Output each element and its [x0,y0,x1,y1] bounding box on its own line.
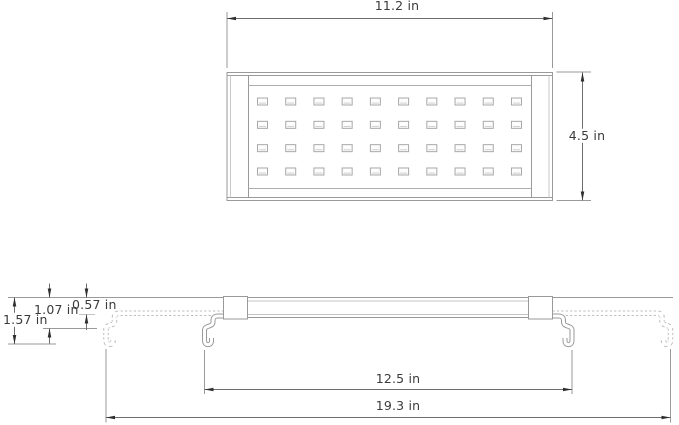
led-chip [455,145,465,152]
led-chip [314,98,324,105]
led-chip [455,121,465,128]
led-chip [511,121,521,128]
led-chip [286,121,296,128]
led-chip [511,168,521,175]
led-chip [427,168,437,175]
led-chip [370,168,380,175]
led-chip [399,145,409,152]
led-chip [370,121,380,128]
arrowhead [106,416,115,420]
led-chip [258,168,268,175]
led-chip [455,168,465,175]
arrowhead [85,315,89,324]
led-chip [258,98,268,105]
led-chip [511,98,521,105]
top-view-drawing [227,73,553,201]
led-chip [399,121,409,128]
arrowhead [48,289,52,298]
bracket-fill [553,316,573,345]
bracket-fill [205,316,225,345]
arrowhead [205,388,214,392]
technical-drawing: 11.2 in 4.5 in 1.57 in 1.07 in 0.57 in 1… [0,0,679,425]
dim-top-width [227,12,553,68]
arrowhead [13,298,17,307]
led-chip [342,121,352,128]
arrowhead [544,17,553,21]
led-chip [455,98,465,105]
led-chip [370,98,380,105]
led-chip [258,145,268,152]
dim-label-body-thickness: 0.57 in [72,298,117,312]
dim-label-top-width: 11.2 in [375,0,420,13]
led-chip [258,121,268,128]
led-chip [286,168,296,175]
arrowhead [48,329,52,338]
drawing-canvas [0,0,679,425]
led-chip [314,121,324,128]
right-end-block [529,297,553,320]
led-chip [399,168,409,175]
led-chip [483,168,493,175]
arrowhead [581,192,585,201]
dim-label-inner-span: 12.5 in [376,372,421,386]
dim-label-extended-span: 19.3 in [376,399,421,413]
led-chip [483,98,493,105]
led-chip [314,168,324,175]
led-chip [483,121,493,128]
dim-label-side-height: 4.5 in [567,129,607,143]
arrowhead [563,388,572,392]
led-chip [342,145,352,152]
light-body-outline [227,73,553,201]
led-chip [427,121,437,128]
led-chip [427,145,437,152]
led-chip [370,145,380,152]
led-chip [483,145,493,152]
led-chip [427,98,437,105]
led-chip [314,145,324,152]
left-bracket-hook [205,316,225,345]
arrowhead [581,73,585,82]
led-chip [286,145,296,152]
arrowhead [662,416,671,420]
arrowhead [227,17,236,21]
right-bracket-hook [553,316,573,345]
left-end-block [224,297,248,320]
led-chip [399,98,409,105]
led-chip [511,145,521,152]
led-chip [342,98,352,105]
arrowhead [13,335,17,344]
led-chip [286,98,296,105]
led-chip [342,168,352,175]
